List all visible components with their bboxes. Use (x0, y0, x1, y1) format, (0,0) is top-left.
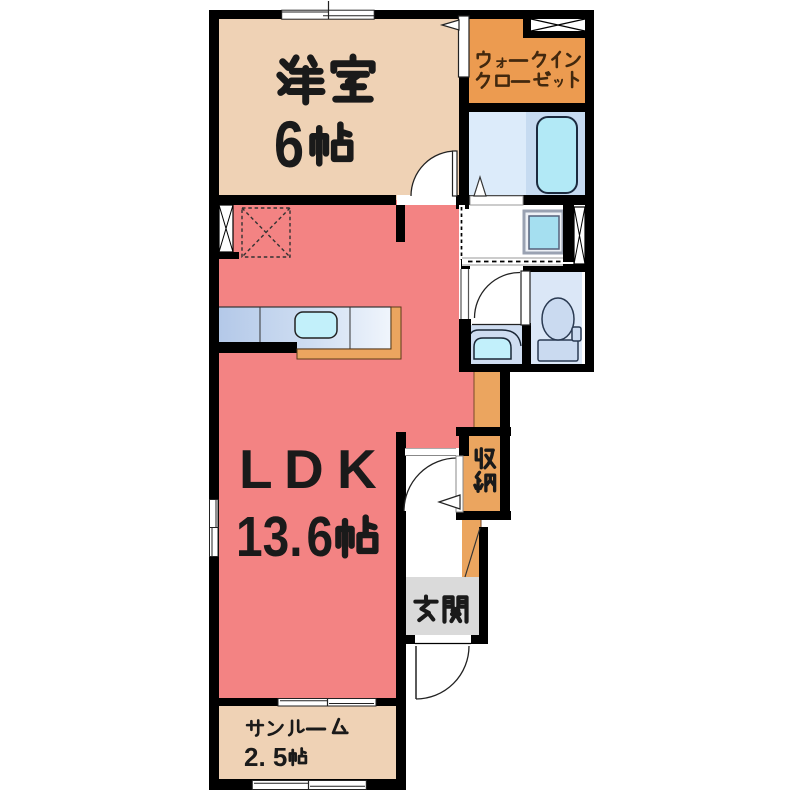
svg-text:2. 5: 2. 5 (244, 742, 287, 772)
svg-text:13.: 13. (236, 505, 303, 569)
svg-text:6: 6 (274, 107, 304, 181)
svg-text:6: 6 (307, 505, 334, 569)
svg-text:D: D (284, 438, 324, 500)
svg-text:L: L (239, 438, 273, 500)
svg-text:K: K (337, 438, 377, 500)
